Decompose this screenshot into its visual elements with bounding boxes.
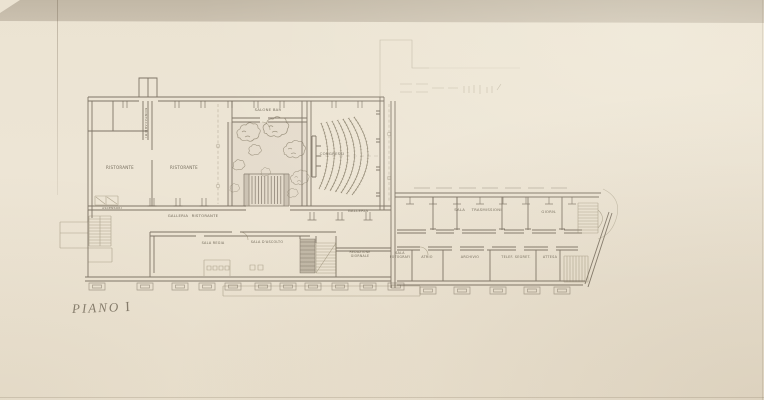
floor-plan-drawing	[0, 0, 764, 400]
sheet-title-word: PIANO	[72, 299, 121, 316]
room-label-galleria: GALLERIA	[341, 209, 375, 214]
room-label-sala-regia: SALA REGIA	[196, 241, 230, 245]
scanned-drawing-page: { "title": { "word": "PIANO", "numeral":…	[0, 0, 764, 400]
room-label-archivio: ARCHIVIO	[453, 255, 487, 259]
room-label-ascensori: ASCENSORI	[95, 207, 129, 211]
room-label-ristorante-1: RISTORANTE	[96, 165, 144, 170]
terrace-outline	[223, 286, 420, 296]
room-label-montacarichi: MONTACARICHI	[143, 103, 147, 143]
room-label-attesa: ATTESA	[537, 255, 563, 259]
elevator-shafts	[95, 196, 118, 205]
room-label-sala-fotografi: SALA FOTOGRAFI	[386, 251, 414, 259]
room-label-telef-segret: TELEF. SEGRET.	[492, 255, 540, 259]
room-label-giorn: GIORN.	[535, 210, 563, 215]
floor-plan-sheet: RISTORANTE RISTORANTE MONTACARICHI ASCEN…	[0, 0, 764, 400]
columns-and-pads	[89, 101, 576, 294]
stair-center	[316, 243, 336, 273]
stair-southeast	[564, 256, 588, 282]
room-label-redazione-giornale: REDAZIONE GIORNALE	[343, 250, 377, 258]
stair-core-block	[300, 239, 315, 273]
room-label-galleria-ristorante: GALLERIA RISTORANTE	[156, 214, 230, 219]
sheet-title: PIANOI	[72, 299, 133, 318]
upper-step-outline	[380, 40, 429, 97]
room-label-salone-bar: SALONE BAR	[246, 108, 290, 113]
east-scribble	[598, 189, 618, 239]
room-label-atrio: ATRIO	[415, 255, 439, 259]
stair-west	[89, 216, 111, 246]
room-label-congressi: CONGRESSI	[313, 152, 351, 157]
sketch-fragments	[400, 84, 501, 94]
counter-and-tables	[204, 260, 263, 276]
room-label-ristorante-2: RISTORANTE	[160, 165, 208, 170]
sheet-title-numeral: I	[125, 300, 132, 315]
galleria-and-lower-wing-walls	[85, 206, 391, 281]
detail-lines	[60, 122, 603, 296]
room-label-sala-trasmissioni: SALA TRASMISSIONI	[438, 208, 518, 213]
stair-northeast	[578, 203, 603, 233]
room-label-sala-ascolto: SALA D'ASCOLTO	[244, 240, 290, 244]
